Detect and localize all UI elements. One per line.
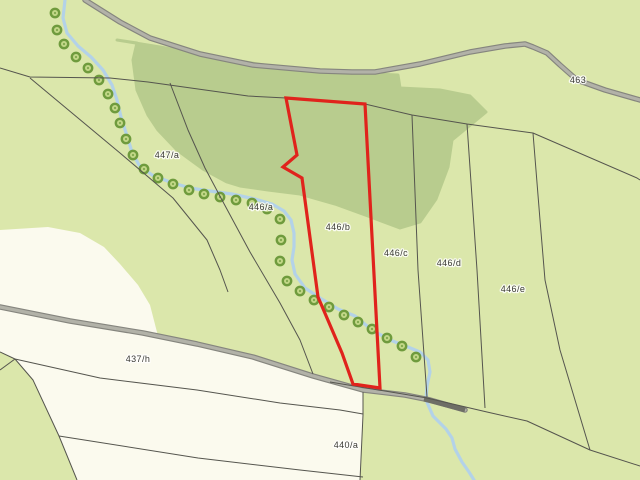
- tree-dot-icon: [132, 154, 134, 156]
- tree-dot-icon: [279, 218, 281, 220]
- parcel-446b-label: 446/b: [326, 222, 351, 232]
- tree-dot-icon: [313, 299, 315, 301]
- tree-dot-icon: [119, 122, 121, 124]
- tree-dot-icon: [286, 280, 288, 282]
- tree-dot-icon: [125, 138, 127, 140]
- tree-dot-icon: [172, 183, 174, 185]
- tree-dot-icon: [114, 107, 116, 109]
- tree-dot-icon: [386, 337, 388, 339]
- tree-dot-icon: [98, 79, 100, 81]
- cadastral-map[interactable]: 463447/a446/a446/b446/c446/d446/e437/h44…: [0, 0, 640, 480]
- parcel-447a-label: 447/a: [155, 150, 180, 160]
- tree-dot-icon: [235, 199, 237, 201]
- parcel-446e-label: 446/e: [501, 284, 526, 294]
- parcel-446c-label: 446/c: [384, 248, 408, 258]
- tree-dot-icon: [371, 328, 373, 330]
- tree-dot-icon: [279, 260, 281, 262]
- parcel-446a-label: 446/a: [249, 202, 274, 212]
- tree-dot-icon: [54, 12, 56, 14]
- cadastral-map-viewport[interactable]: 463447/a446/a446/b446/c446/d446/e437/h44…: [0, 0, 640, 480]
- tree-dot-icon: [299, 290, 301, 292]
- tree-dot-icon: [107, 93, 109, 95]
- parcel-446d-label: 446/d: [437, 258, 462, 268]
- tree-dot-icon: [357, 321, 359, 323]
- tree-dot-icon: [63, 43, 65, 45]
- tree-dot-icon: [280, 239, 282, 241]
- tree-dot-icon: [75, 56, 77, 58]
- tree-dot-icon: [328, 306, 330, 308]
- parcel-437h-label: 437/h: [126, 354, 151, 364]
- road-463-label: 463: [570, 75, 586, 85]
- tree-dot-icon: [157, 177, 159, 179]
- tree-dot-icon: [415, 356, 417, 358]
- tree-dot-icon: [56, 29, 58, 31]
- tree-dot-icon: [188, 189, 190, 191]
- tree-dot-icon: [87, 67, 89, 69]
- tree-dot-icon: [203, 193, 205, 195]
- tree-dot-icon: [401, 345, 403, 347]
- parcel-440a-label: 440/a: [334, 440, 359, 450]
- tree-dot-icon: [143, 168, 145, 170]
- tree-dot-icon: [343, 314, 345, 316]
